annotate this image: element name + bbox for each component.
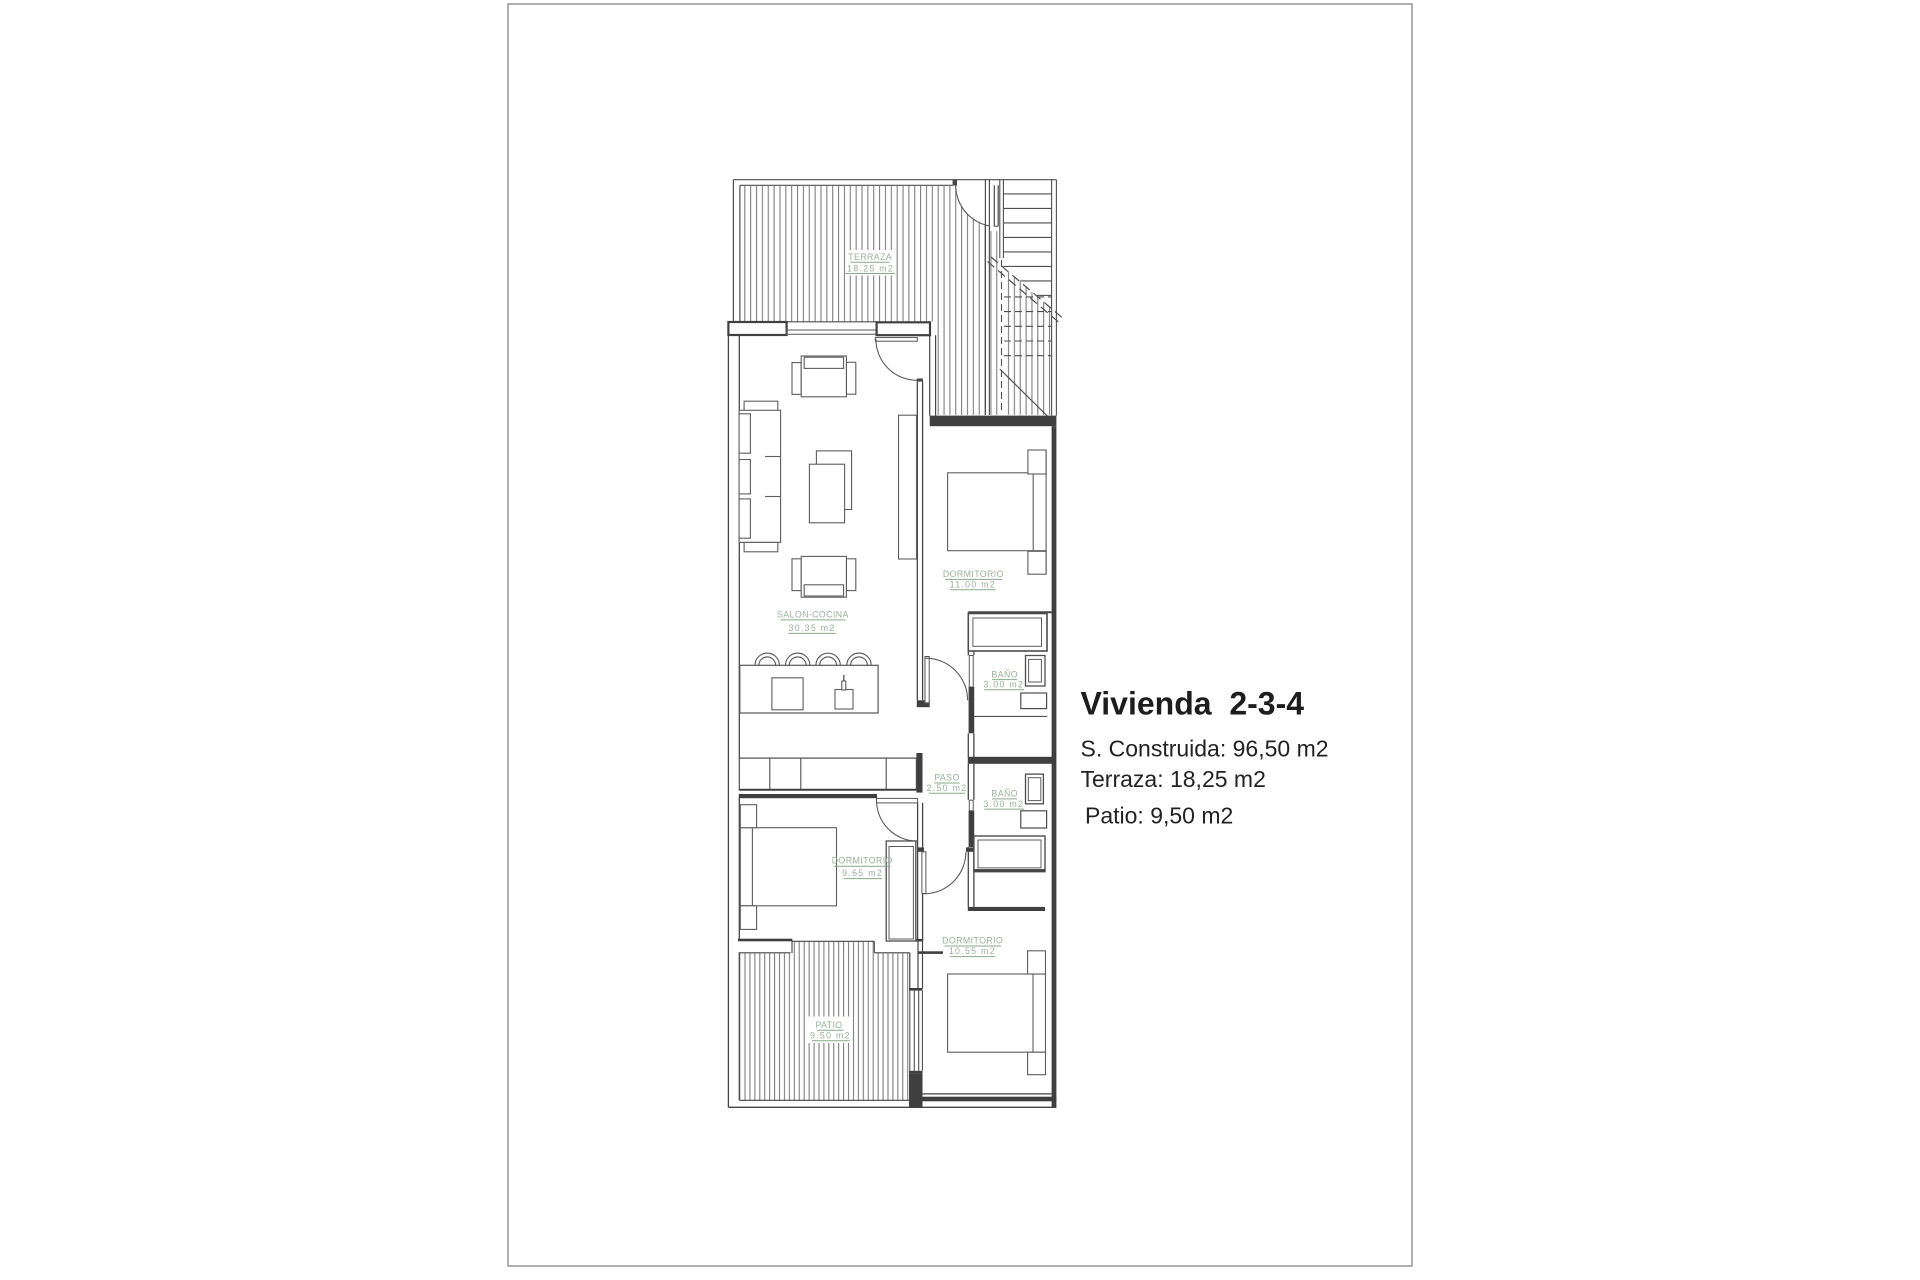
svg-text:BAÑO: BAÑO — [991, 669, 1018, 679]
svg-text:BAÑO: BAÑO — [991, 789, 1018, 799]
svg-text:Vivienda 2-3-4: Vivienda 2-3-4 — [1081, 686, 1305, 722]
svg-text:DORMITORIO: DORMITORIO — [943, 569, 1004, 579]
svg-text:TERRAZA: TERRAZA — [848, 252, 892, 262]
svg-text:30.35 m2: 30.35 m2 — [789, 623, 836, 633]
svg-text:Terraza: 18,25 m2: Terraza: 18,25 m2 — [1081, 766, 1266, 792]
svg-text:DORMITORIO: DORMITORIO — [832, 856, 893, 866]
svg-text:DORMITORIO: DORMITORIO — [942, 936, 1003, 946]
svg-text:9.65 m2: 9.65 m2 — [842, 868, 883, 878]
svg-text:10.55 m2: 10.55 m2 — [949, 946, 996, 956]
svg-text:SALON-COCINA: SALON-COCINA — [777, 610, 849, 620]
svg-text:3.00 m2: 3.00 m2 — [983, 680, 1024, 690]
svg-text:18.25 m2: 18.25 m2 — [847, 263, 894, 273]
svg-text:S. Construida: 96,50 m2: S. Construida: 96,50 m2 — [1081, 736, 1329, 762]
svg-text:3.00 m2: 3.00 m2 — [983, 799, 1024, 809]
svg-text:2.50 m2: 2.50 m2 — [927, 783, 968, 793]
svg-text:11.00 m2: 11.00 m2 — [950, 580, 996, 590]
svg-text:PATIO: PATIO — [815, 1020, 842, 1030]
svg-text:PASO: PASO — [934, 773, 959, 783]
svg-text:Patio: 9,50 m2: Patio: 9,50 m2 — [1085, 802, 1233, 828]
svg-text:9.50 m2: 9.50 m2 — [810, 1030, 851, 1040]
